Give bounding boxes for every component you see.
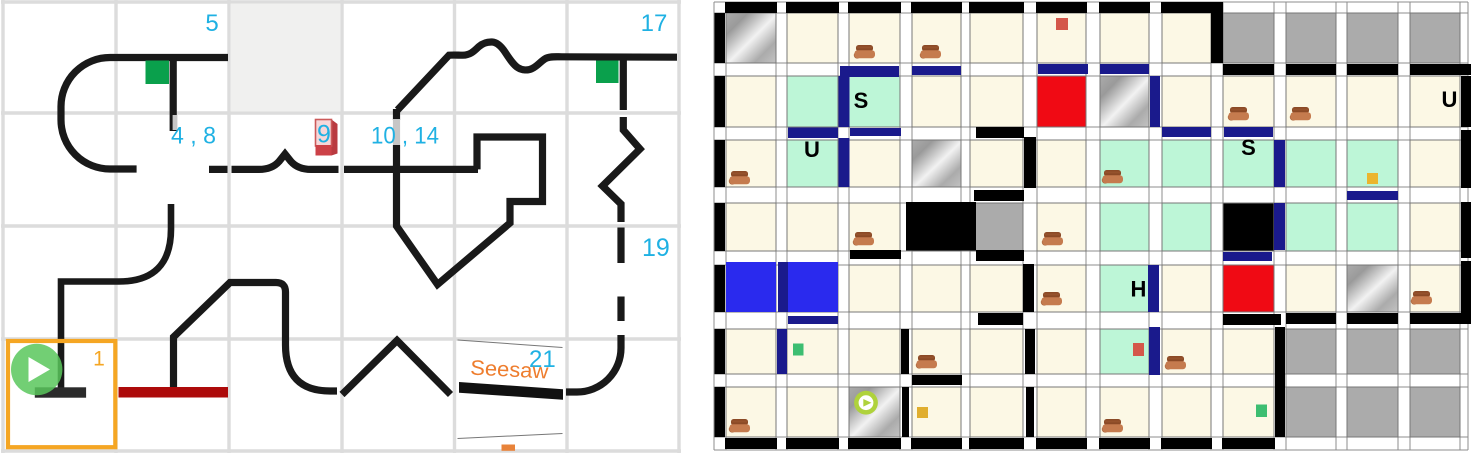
svg-text:9: 9 xyxy=(317,121,331,149)
svg-text:U: U xyxy=(1442,87,1458,112)
svg-text:H: H xyxy=(1131,277,1147,302)
svg-text:5: 5 xyxy=(205,10,218,37)
svg-text:17: 17 xyxy=(641,10,668,37)
svg-text:10 , 14: 10 , 14 xyxy=(371,123,439,150)
svg-text:19: 19 xyxy=(642,234,670,262)
svg-text:1: 1 xyxy=(93,348,105,371)
svg-text:4 , 8: 4 , 8 xyxy=(171,123,216,150)
svg-text:S: S xyxy=(854,88,869,113)
svg-text:Seesaw: Seesaw xyxy=(470,357,550,384)
svg-text:U: U xyxy=(804,137,820,162)
svg-text:S: S xyxy=(1241,135,1256,160)
